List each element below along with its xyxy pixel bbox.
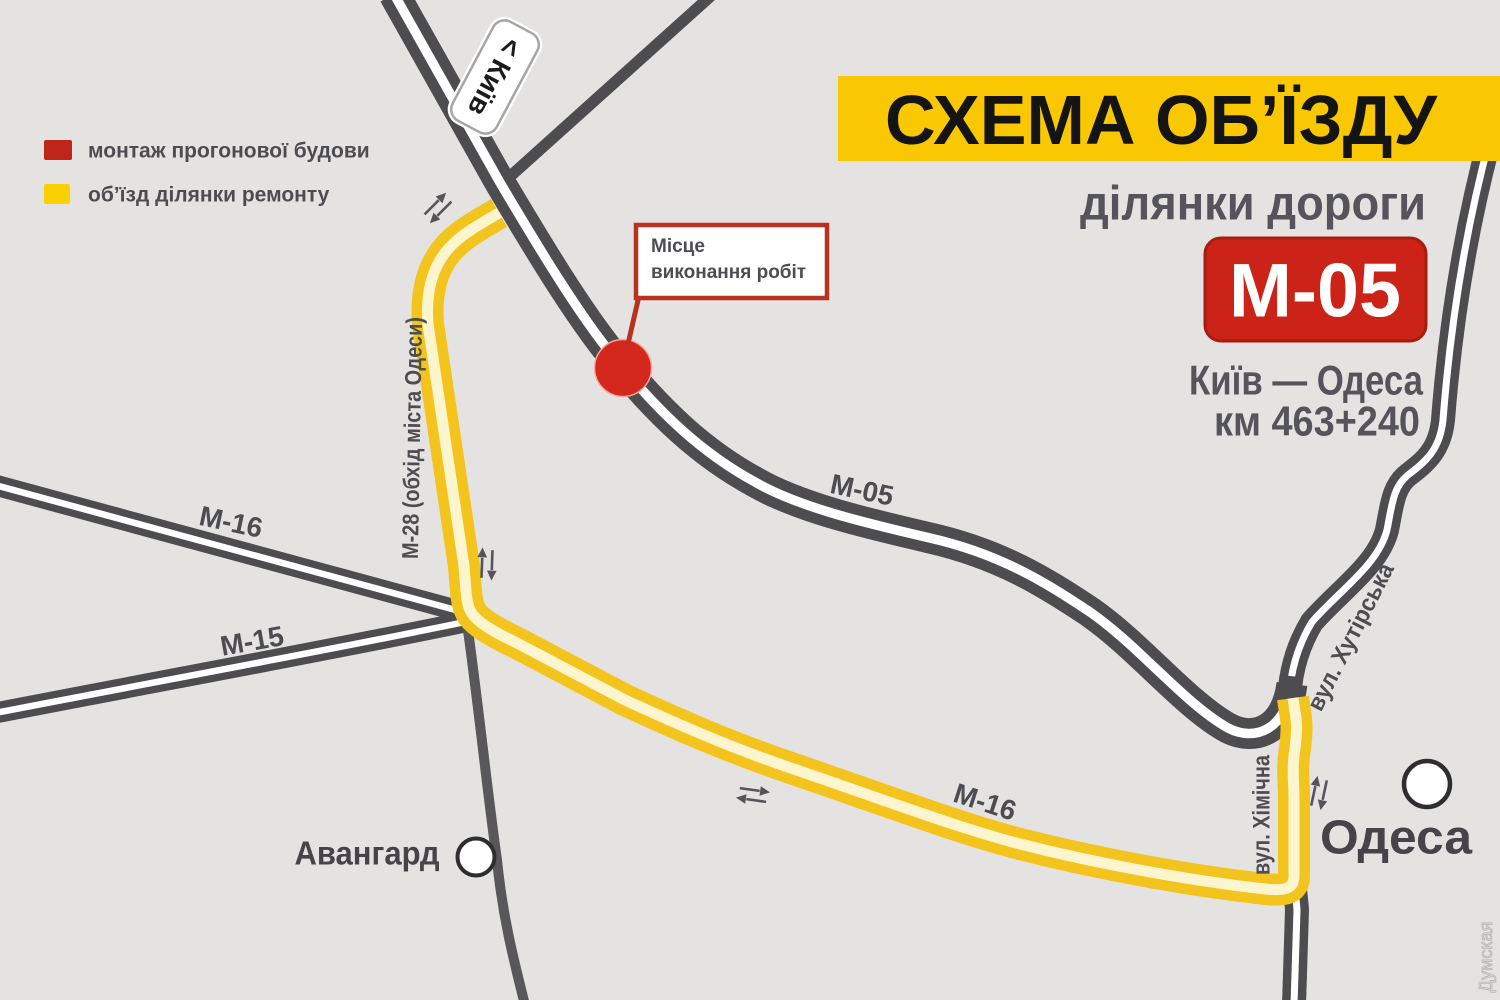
svg-text:ділянки дороги: ділянки дороги <box>1080 178 1426 231</box>
svg-text:Одеса: Одеса <box>1320 812 1472 865</box>
svg-text:СХЕМА ОБ’ЇЗДУ: СХЕМА ОБ’ЇЗДУ <box>885 81 1438 159</box>
svg-text:Місце: Місце <box>651 236 705 257</box>
svg-text:монтаж прогонової будови: монтаж прогонової будови <box>88 140 370 163</box>
svg-text:Думская: Думская <box>1476 922 1496 993</box>
svg-text:виконання робіт: виконання робіт <box>651 262 806 283</box>
svg-text:Київ — Одеса: Київ — Одеса <box>1189 357 1424 404</box>
svg-text:вул. Хімічна: вул. Хімічна <box>1249 754 1276 875</box>
svg-text:км 463+240: км 463+240 <box>1214 398 1420 445</box>
svg-text:об’їзд ділянки ремонту: об’їзд ділянки ремонту <box>88 184 330 207</box>
svg-text:М-05: М-05 <box>1229 249 1401 334</box>
svg-text:Авангард: Авангард <box>295 835 440 872</box>
svg-text:М-28 (обхід міста Одеси): М-28 (обхід міста Одеси) <box>397 317 427 559</box>
